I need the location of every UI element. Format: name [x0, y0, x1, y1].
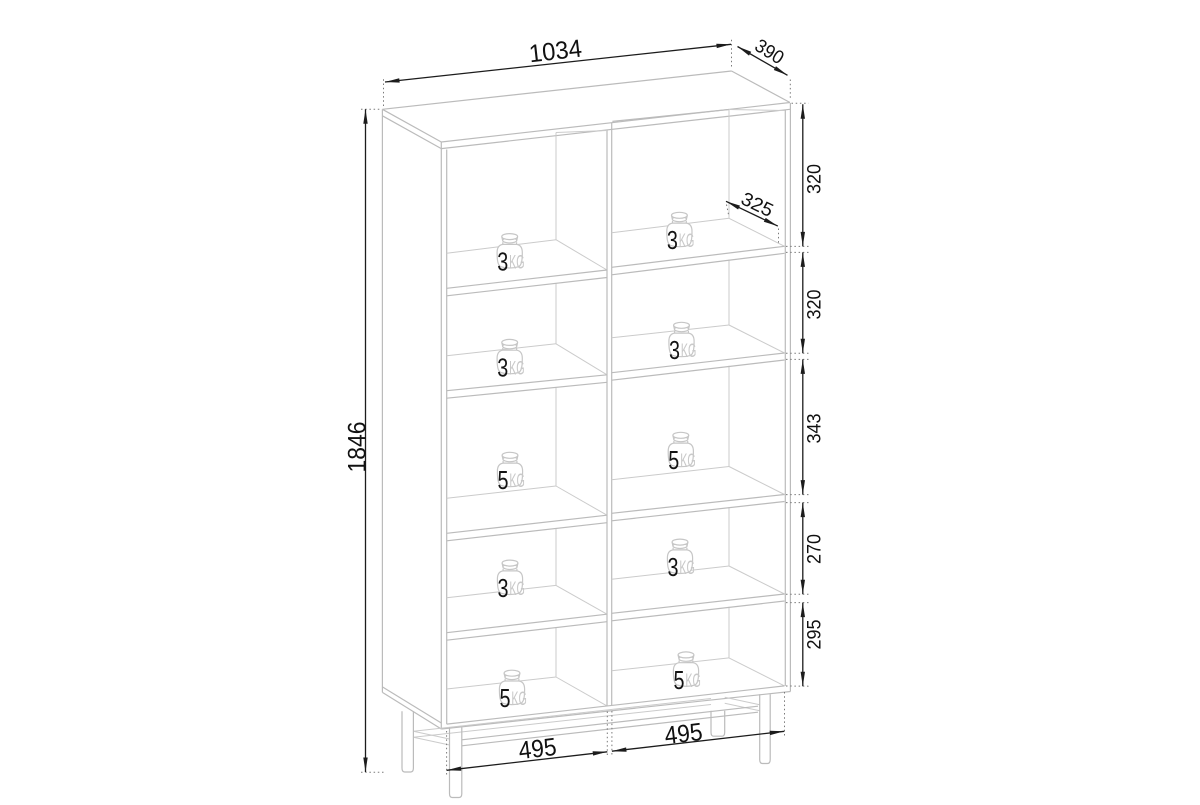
svg-text:5: 5 — [668, 445, 679, 475]
svg-text:320: 320 — [805, 164, 826, 194]
svg-text:5: 5 — [500, 683, 511, 713]
svg-text:KG: KG — [509, 253, 524, 274]
svg-text:5: 5 — [674, 665, 685, 695]
svg-text:KG: KG — [679, 231, 695, 252]
svg-text:3: 3 — [667, 225, 678, 255]
svg-text:3: 3 — [669, 335, 680, 365]
svg-text:320: 320 — [805, 290, 826, 320]
svg-text:KG: KG — [679, 558, 695, 579]
svg-text:3: 3 — [498, 573, 509, 603]
svg-text:295: 295 — [805, 620, 826, 650]
svg-text:3: 3 — [497, 247, 508, 277]
svg-text:270: 270 — [805, 534, 826, 564]
svg-text:5: 5 — [498, 465, 509, 495]
svg-text:KG: KG — [685, 671, 701, 692]
svg-text:495: 495 — [663, 718, 704, 750]
svg-text:KG: KG — [509, 471, 525, 492]
svg-text:3: 3 — [497, 352, 508, 382]
svg-text:KG: KG — [509, 358, 524, 379]
svg-text:1034: 1034 — [528, 35, 584, 69]
svg-text:3: 3 — [668, 552, 679, 582]
svg-text:KG: KG — [511, 689, 527, 710]
svg-text:KG: KG — [681, 341, 697, 362]
svg-text:KG: KG — [680, 451, 696, 472]
svg-text:495: 495 — [517, 733, 558, 765]
svg-text:343: 343 — [805, 414, 826, 444]
svg-text:KG: KG — [509, 579, 525, 600]
svg-text:1846: 1846 — [344, 422, 372, 473]
